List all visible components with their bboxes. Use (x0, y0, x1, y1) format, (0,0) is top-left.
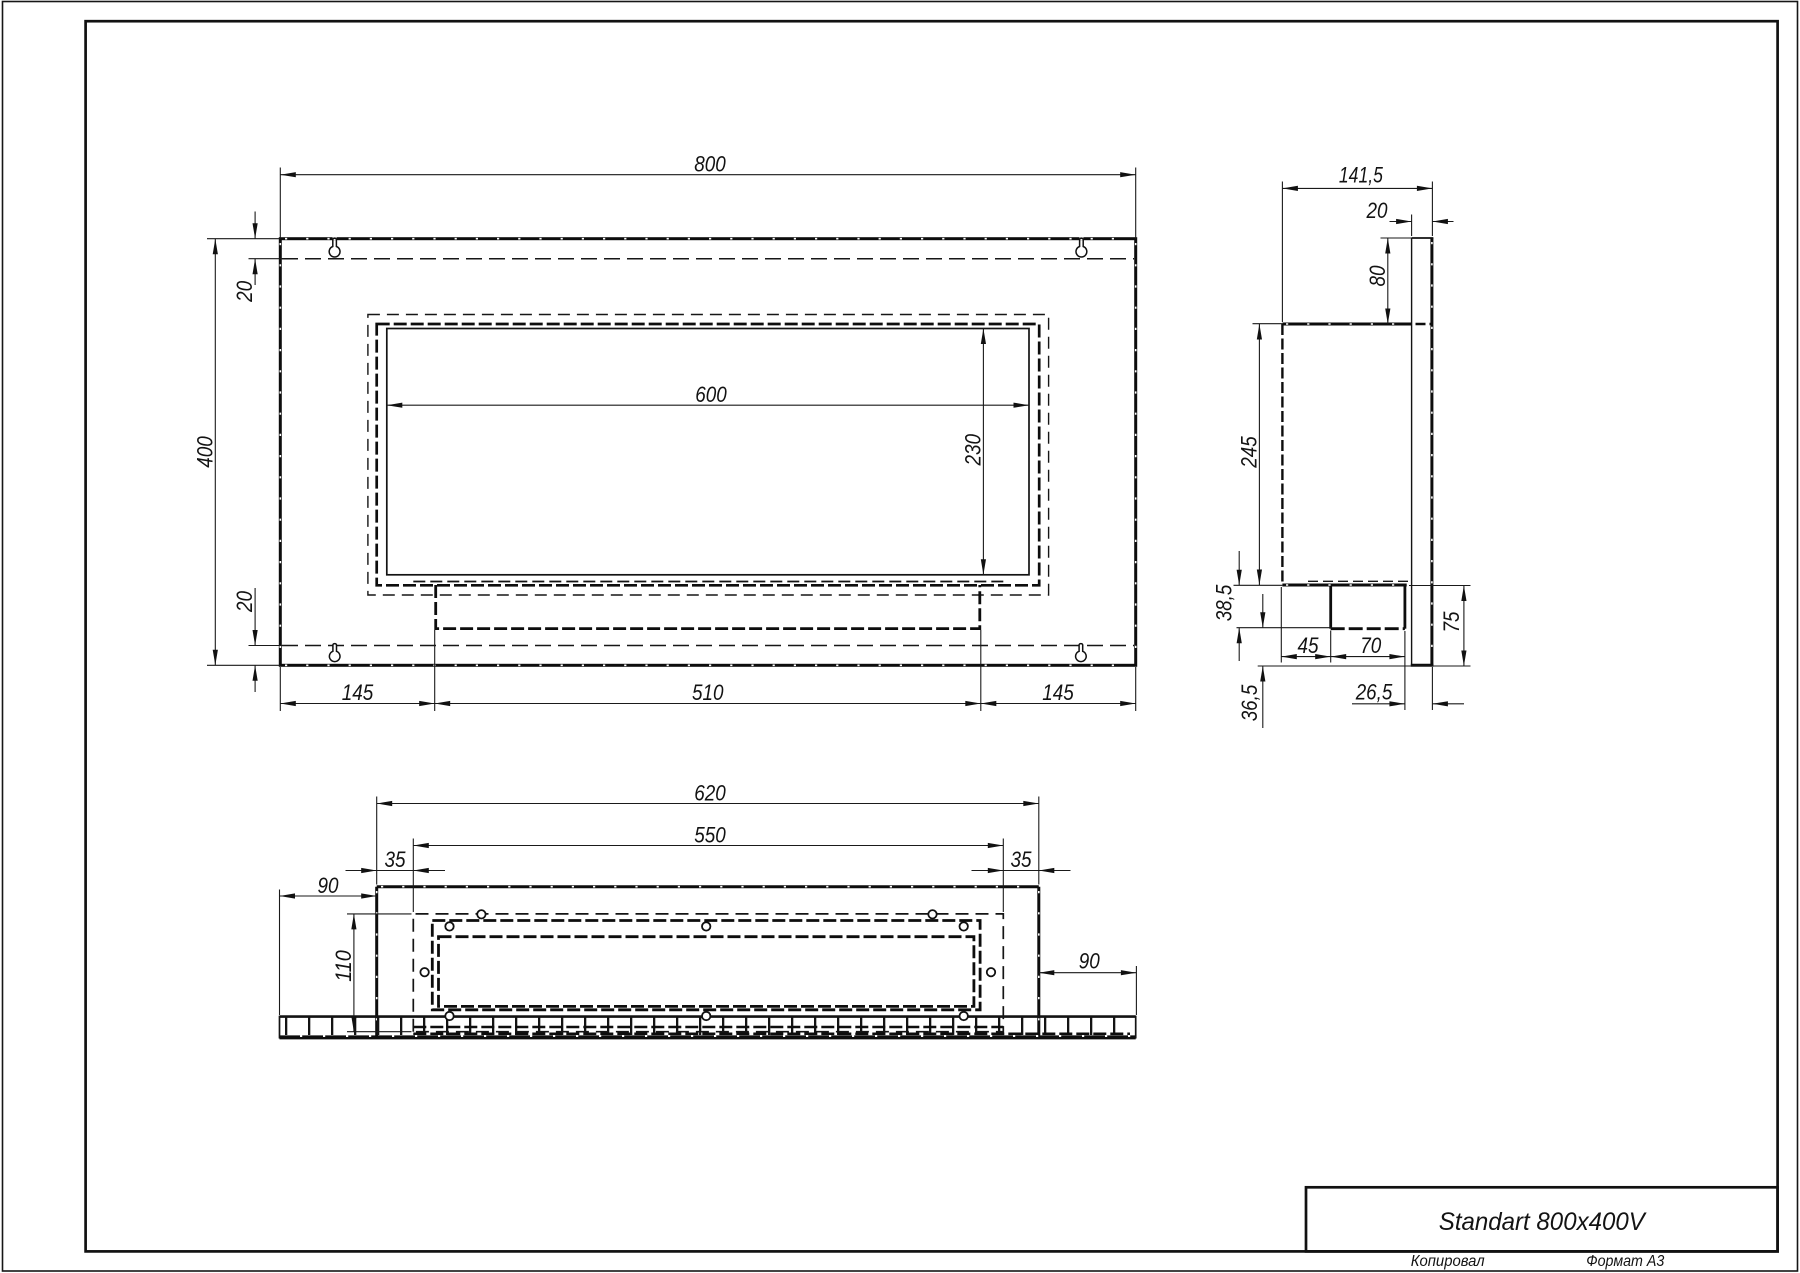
svg-text:26,5: 26,5 (1355, 680, 1393, 705)
svg-text:90: 90 (1079, 949, 1100, 974)
svg-text:Копировал: Копировал (1411, 1253, 1485, 1270)
svg-text:230: 230 (960, 434, 985, 467)
svg-text:35: 35 (1011, 847, 1032, 872)
svg-text:35: 35 (385, 847, 406, 872)
svg-text:20: 20 (232, 591, 257, 613)
svg-text:400: 400 (192, 436, 217, 468)
svg-text:70: 70 (1360, 633, 1381, 658)
svg-text:620: 620 (694, 781, 726, 806)
svg-text:36,5: 36,5 (1237, 684, 1262, 721)
svg-text:510: 510 (692, 680, 724, 705)
svg-text:80: 80 (1365, 265, 1390, 286)
svg-text:800: 800 (694, 152, 726, 177)
svg-text:45: 45 (1298, 633, 1319, 658)
svg-text:145: 145 (1042, 680, 1074, 705)
svg-text:38,5: 38,5 (1211, 584, 1236, 621)
svg-text:90: 90 (318, 873, 339, 898)
svg-text:75: 75 (1439, 611, 1464, 632)
svg-text:550: 550 (694, 823, 726, 848)
svg-text:Standart 800x400V: Standart 800x400V (1439, 1208, 1647, 1236)
svg-text:245: 245 (1236, 436, 1261, 469)
svg-text:20: 20 (232, 280, 257, 302)
svg-text:110: 110 (331, 950, 356, 982)
svg-text:20: 20 (1366, 198, 1388, 223)
svg-text:Формат А3: Формат А3 (1586, 1253, 1664, 1270)
svg-text:600: 600 (695, 382, 727, 407)
svg-text:145: 145 (342, 680, 374, 705)
svg-text:141,5: 141,5 (1339, 163, 1383, 188)
